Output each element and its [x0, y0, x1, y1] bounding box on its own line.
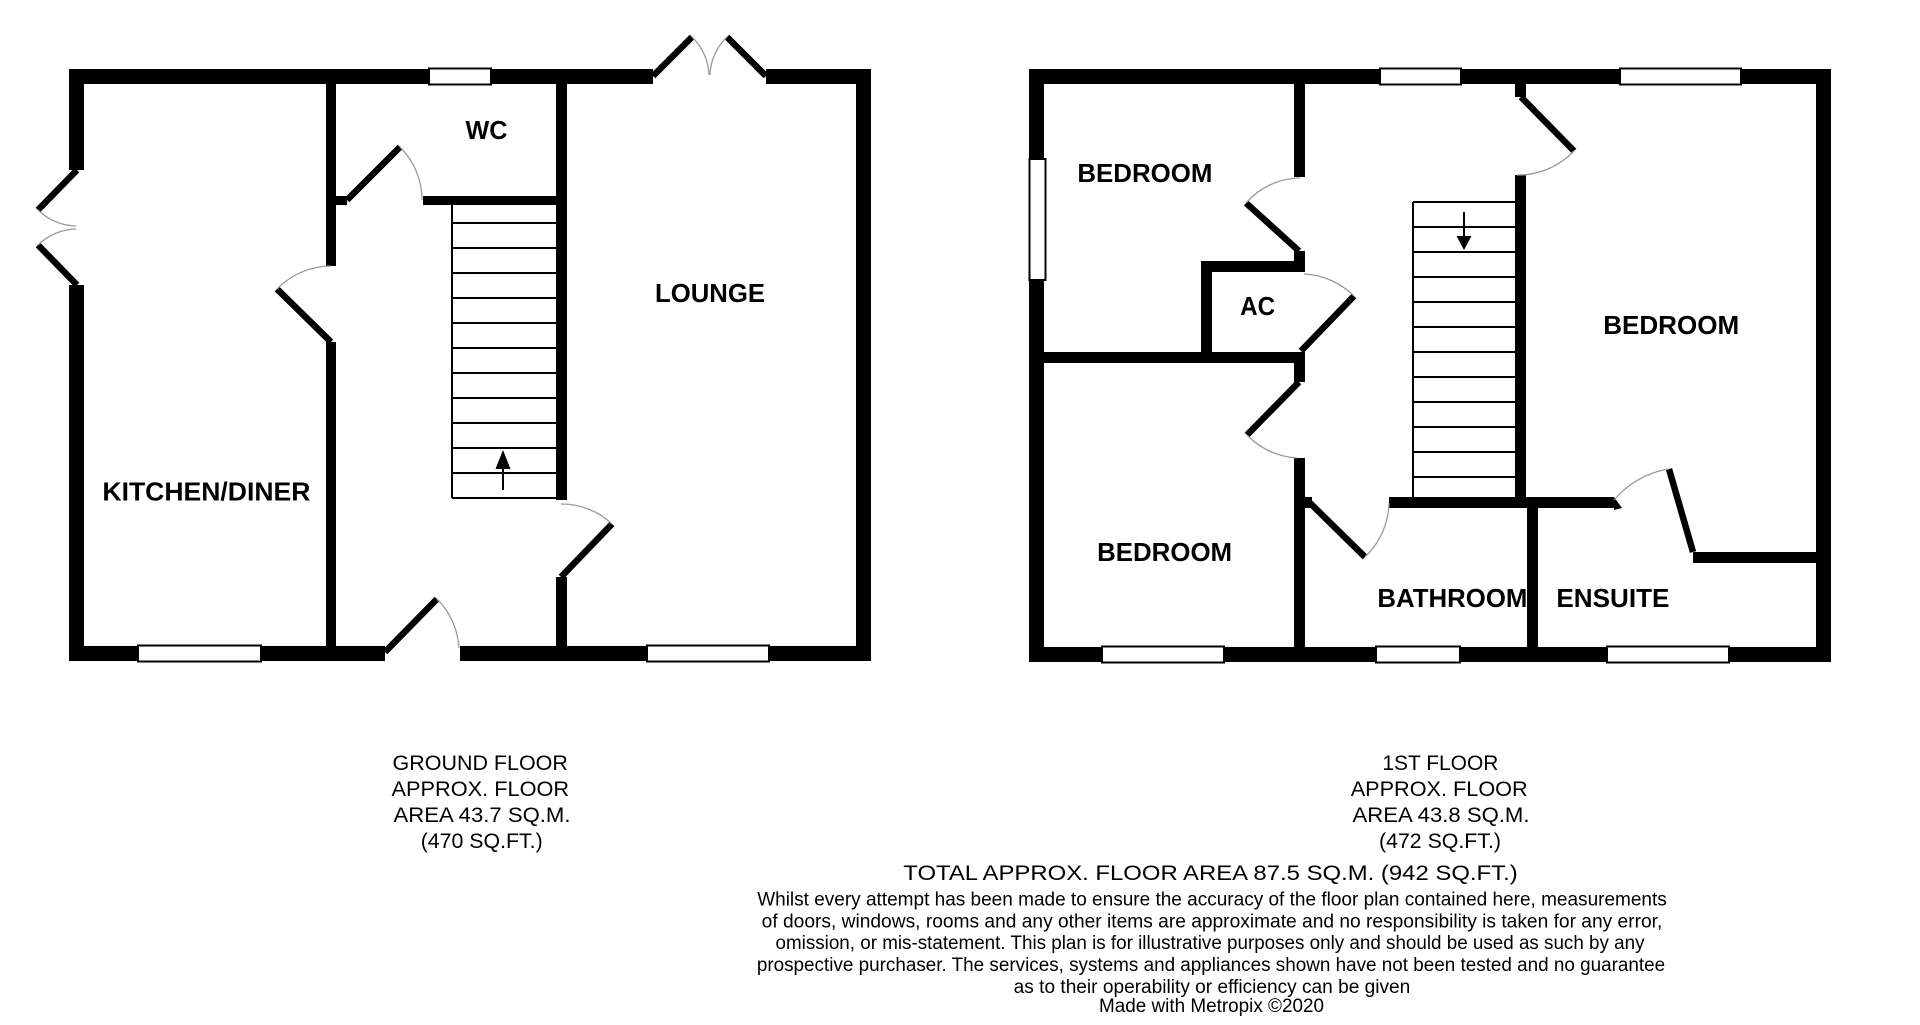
svg-text:APPROX. FLOOR: APPROX. FLOOR [1351, 777, 1528, 801]
svg-text:AREA 43.7 SQ.M.: AREA 43.7 SQ.M. [394, 803, 571, 827]
svg-text:BEDROOM: BEDROOM [1603, 310, 1739, 340]
svg-text:prospective purchaser. The ser: prospective purchaser. The services, sys… [757, 955, 1665, 976]
svg-text:AREA 43.8 SQ.M.: AREA 43.8 SQ.M. [1353, 803, 1530, 827]
svg-text:BEDROOM: BEDROOM [1097, 537, 1232, 567]
svg-text:GROUND FLOOR: GROUND FLOOR [393, 751, 568, 775]
svg-text:BATHROOM: BATHROOM [1377, 583, 1527, 613]
svg-text:(470 SQ.FT.): (470 SQ.FT.) [421, 829, 543, 853]
svg-text:omission, or mis-statement. Th: omission, or mis-statement. This plan is… [776, 933, 1645, 954]
svg-text:Made with Metropix ©2020: Made with Metropix ©2020 [1099, 996, 1324, 1017]
svg-text:TOTAL APPROX. FLOOR AREA 87.5: TOTAL APPROX. FLOOR AREA 87.5 SQ.M. (942… [903, 861, 1517, 885]
svg-text:KITCHEN/DINER: KITCHEN/DINER [102, 476, 310, 506]
svg-text:ENSUITE: ENSUITE [1556, 583, 1669, 613]
svg-text:WC: WC [466, 115, 508, 145]
svg-text:of doors, windows, rooms and a: of doors, windows, rooms and any other i… [762, 912, 1663, 933]
svg-text:(472 SQ.FT.): (472 SQ.FT.) [1379, 829, 1501, 853]
svg-text:1ST FLOOR: 1ST FLOOR [1382, 751, 1498, 775]
svg-text:BEDROOM: BEDROOM [1077, 158, 1212, 188]
svg-text:as to their operability or eff: as to their operability or efficiency ca… [1014, 977, 1411, 998]
svg-text:Whilst every attempt has been: Whilst every attempt has been made to en… [757, 890, 1667, 911]
svg-text:APPROX. FLOOR: APPROX. FLOOR [392, 777, 570, 801]
svg-text:AC: AC [1240, 291, 1275, 321]
svg-text:LOUNGE: LOUNGE [655, 278, 765, 308]
